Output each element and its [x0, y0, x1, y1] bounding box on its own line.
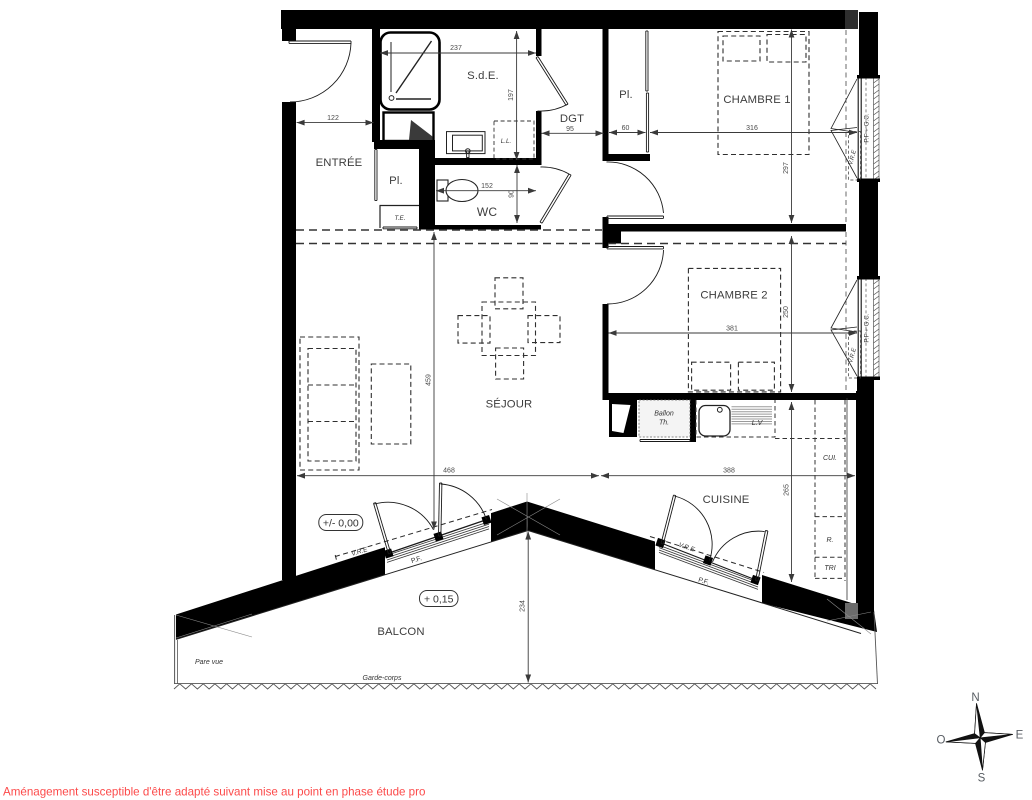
- svg-text:+/- 0,00: +/- 0,00: [323, 517, 359, 529]
- svg-text:234: 234: [520, 600, 527, 612]
- svg-text:CUISINE: CUISINE: [703, 494, 750, 506]
- svg-text:95: 95: [566, 126, 574, 133]
- svg-text:Garde-corps: Garde-corps: [363, 675, 402, 682]
- svg-text:CUI.: CUI.: [823, 455, 837, 462]
- svg-text:197: 197: [508, 89, 515, 101]
- svg-text:S: S: [978, 773, 986, 785]
- svg-text:CHAMBRE 1: CHAMBRE 1: [723, 94, 790, 106]
- svg-text:WC: WC: [477, 205, 497, 219]
- svg-text:O: O: [937, 735, 946, 747]
- svg-text:122: 122: [327, 115, 339, 122]
- svg-text:T.E.: T.E.: [395, 215, 406, 222]
- svg-text:ENTRÉE: ENTRÉE: [316, 156, 363, 169]
- svg-text:R.: R.: [827, 537, 834, 544]
- svg-text:P.F + G.C.: P.F + G.C.: [864, 313, 871, 342]
- svg-text:E: E: [1016, 730, 1024, 742]
- svg-text:Pl.: Pl.: [389, 175, 403, 187]
- svg-text:Th.: Th.: [659, 420, 669, 427]
- svg-text:152: 152: [481, 183, 493, 190]
- svg-text:297: 297: [783, 162, 790, 174]
- svg-text:BALCON: BALCON: [377, 626, 424, 638]
- svg-text:316: 316: [746, 125, 758, 132]
- svg-text:Ballon: Ballon: [654, 411, 674, 418]
- svg-text:TRI: TRI: [824, 565, 835, 572]
- svg-text:90: 90: [509, 190, 516, 198]
- svg-text:DGT: DGT: [560, 113, 584, 125]
- svg-text:L.L.: L.L.: [501, 138, 512, 145]
- svg-text:S.d.E.: S.d.E.: [467, 70, 499, 82]
- svg-text:381: 381: [726, 326, 738, 333]
- svg-text:60: 60: [622, 125, 630, 132]
- svg-text:388: 388: [723, 468, 735, 475]
- svg-text:SÉJOUR: SÉJOUR: [486, 398, 533, 411]
- svg-text:250: 250: [783, 306, 790, 318]
- svg-text:459: 459: [426, 374, 433, 386]
- svg-text:L.V: L.V: [752, 420, 764, 427]
- svg-text:Pare vue: Pare vue: [195, 659, 223, 666]
- svg-text:Pl.: Pl.: [619, 89, 633, 101]
- svg-text:+ 0,15: + 0,15: [424, 593, 454, 605]
- svg-text:468: 468: [443, 468, 455, 475]
- svg-text:P.F + G.C.: P.F + G.C.: [864, 113, 871, 142]
- svg-text:N: N: [971, 692, 979, 704]
- svg-text:237: 237: [450, 45, 462, 52]
- svg-text:CHAMBRE 2: CHAMBRE 2: [700, 290, 767, 302]
- svg-text:Aménagement susceptible d'être: Aménagement susceptible d'être adapté su…: [3, 786, 425, 799]
- svg-text:265: 265: [784, 484, 791, 496]
